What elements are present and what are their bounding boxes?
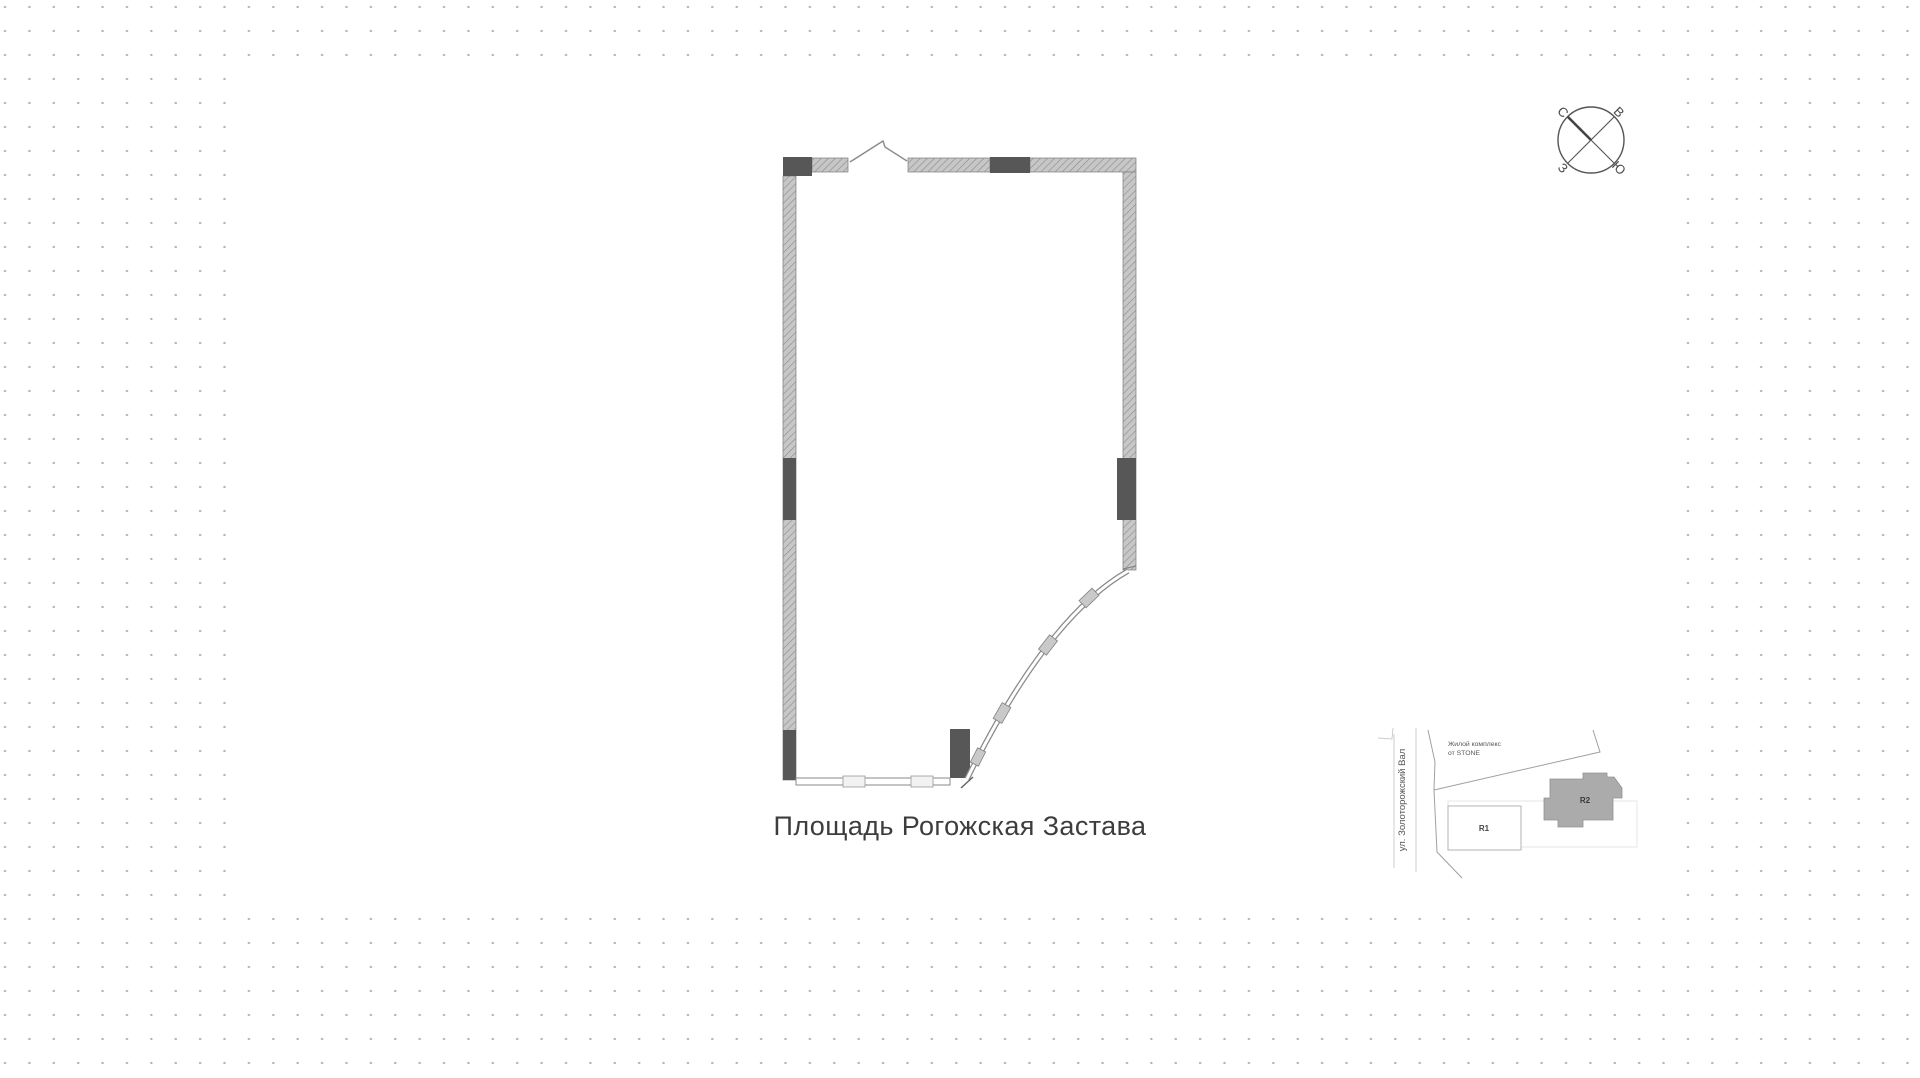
mullion-mark xyxy=(970,748,985,766)
curved-glass-facade-outer xyxy=(967,571,1128,779)
wall-top-middle-segment xyxy=(908,158,990,172)
mullion-mark xyxy=(993,703,1011,724)
column-top-left xyxy=(783,157,812,176)
dotted-background: Площадь Рогожская Застава С В З Ю ул. Зо… xyxy=(0,0,1920,1078)
location-minimap: ул. Золоторожский Вал Жилой комплекс от … xyxy=(1375,720,1645,885)
column-top-wall xyxy=(990,157,1030,173)
floor-plan xyxy=(770,110,1170,810)
street-label: ул. Золоторожский Вал xyxy=(1397,749,1408,852)
mullion-mark xyxy=(843,776,865,787)
complex-label-line1: Жилой комплекс xyxy=(1448,740,1502,748)
compass: С В З Ю xyxy=(1548,98,1638,188)
column-bottom-right xyxy=(950,729,970,778)
column-right-wall xyxy=(1117,458,1136,520)
building-r1-label: R1 xyxy=(1479,824,1490,833)
building-r2-label: R2 xyxy=(1580,796,1591,805)
wall-top-right-segment xyxy=(1030,158,1136,172)
compass-label-west: З xyxy=(1555,160,1571,176)
complex-label-line2: от STONE xyxy=(1448,750,1480,757)
column-left-wall xyxy=(783,458,796,520)
location-title: Площадь Рогожская Застава xyxy=(770,811,1150,842)
compass-north-needle xyxy=(1568,117,1591,140)
curved-glass-facade-inner xyxy=(967,571,1128,779)
wall-top-left-segment xyxy=(812,158,848,172)
column-bottom-left xyxy=(783,730,796,780)
side-street-line xyxy=(1378,728,1393,739)
entrance-door-swing xyxy=(850,141,907,162)
mullion-mark xyxy=(911,776,933,787)
